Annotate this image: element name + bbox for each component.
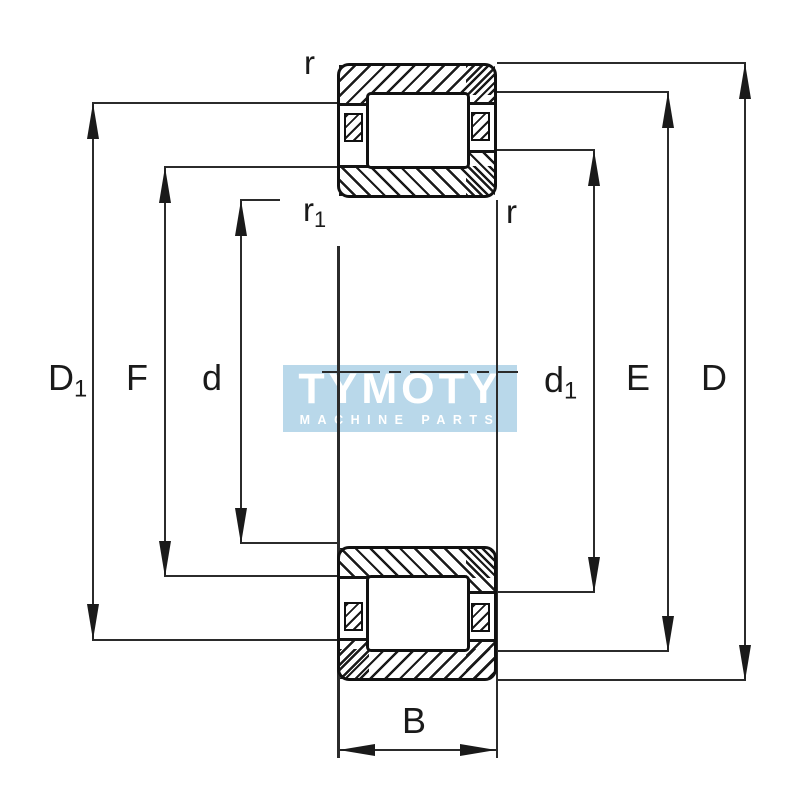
leader-d1-bottom	[497, 591, 595, 593]
label-d-main: d	[202, 357, 222, 398]
arrow-B-left	[339, 744, 375, 756]
dim-line-d1	[593, 150, 595, 593]
label-r-right-main: r	[506, 193, 517, 230]
label-E-main: E	[626, 357, 650, 398]
bottom-section-outline	[337, 546, 497, 681]
arrow-F-up	[159, 167, 171, 203]
arrow-d1-up	[588, 150, 600, 186]
top-section-outline	[337, 63, 497, 198]
label-F: F	[126, 358, 148, 398]
bore-line-left	[337, 246, 340, 758]
label-r1-main: r	[303, 191, 314, 228]
axis-centerline	[320, 368, 520, 376]
label-D1-sub: 1	[74, 376, 87, 403]
label-D-main: D	[701, 357, 727, 398]
bore-line-right	[496, 200, 499, 758]
arrow-d1-down	[588, 557, 600, 593]
watermark-subtitle: MACHINE PARTS	[300, 413, 501, 427]
dim-line-E	[667, 92, 669, 652]
label-D1-main: D	[48, 357, 74, 398]
label-d1-main: d	[544, 359, 564, 400]
arrow-D1-up	[87, 103, 99, 139]
label-d1-sub: 1	[564, 378, 577, 405]
leader-D1-bottom	[92, 639, 338, 641]
arrow-d-down	[235, 508, 247, 544]
label-r1-sub: 1	[314, 207, 326, 232]
arrow-D-up	[739, 63, 751, 99]
leader-E-bottom	[497, 650, 669, 652]
leader-D-bottom	[497, 679, 746, 681]
label-r-top-left: r	[304, 45, 315, 81]
arrow-F-down	[159, 541, 171, 577]
label-D1: D1	[48, 358, 87, 403]
arrow-E-up	[662, 92, 674, 128]
arrow-D-down	[739, 645, 751, 681]
leader-D-top	[497, 62, 746, 64]
leader-E-top	[497, 91, 669, 93]
dim-line-D	[744, 63, 746, 681]
dim-line-d	[240, 200, 242, 544]
label-r1-mid-left: r1	[303, 192, 326, 232]
label-E: E	[626, 358, 650, 398]
label-D: D	[701, 358, 727, 398]
label-B-main: B	[402, 700, 426, 741]
label-r-top-main: r	[304, 44, 315, 81]
arrow-E-down	[662, 616, 674, 652]
arrow-B-right	[460, 744, 496, 756]
dim-line-D1	[92, 103, 94, 640]
label-r-mid-right: r	[506, 194, 517, 230]
leader-d1-top	[497, 149, 595, 151]
leader-F-top	[164, 166, 338, 168]
leader-d-bottom	[240, 542, 340, 544]
label-F-main: F	[126, 357, 148, 398]
dim-line-F	[164, 167, 166, 577]
leader-F-bottom	[164, 575, 338, 577]
label-d1: d1	[544, 360, 577, 405]
label-B: B	[402, 701, 426, 741]
leader-D1-top	[92, 102, 338, 104]
arrow-d-up	[235, 200, 247, 236]
label-d: d	[202, 358, 222, 398]
bearing-technical-drawing: TYMOTY MACHINE PARTS	[0, 0, 800, 800]
arrow-D1-down	[87, 604, 99, 640]
